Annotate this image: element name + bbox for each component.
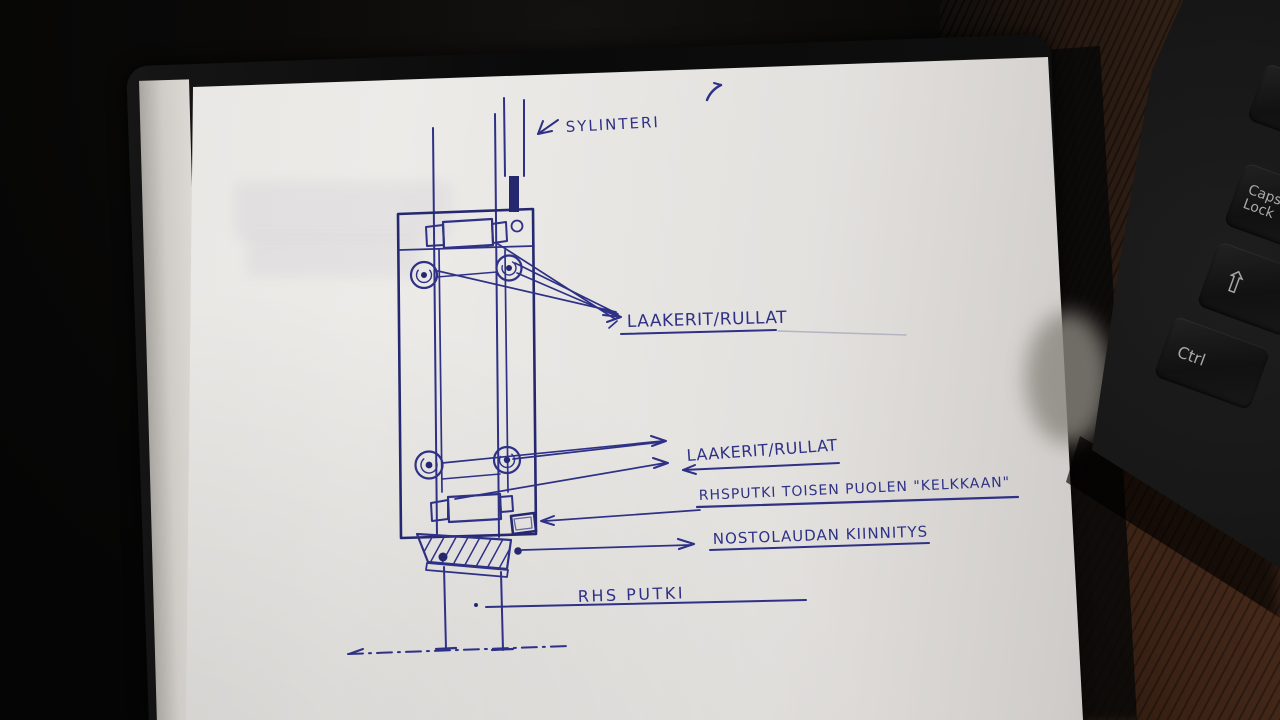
caps-lock-key-label: Caps Lock (1241, 183, 1280, 224)
show-through-smudge (248, 236, 418, 276)
shift-arrow-icon: ⇧ (1217, 262, 1253, 303)
photo-of-sketch: SYLINTERI (0, 0, 1280, 720)
ctrl-key-label: Ctrl (1175, 342, 1208, 370)
show-through-smudge (235, 182, 450, 238)
